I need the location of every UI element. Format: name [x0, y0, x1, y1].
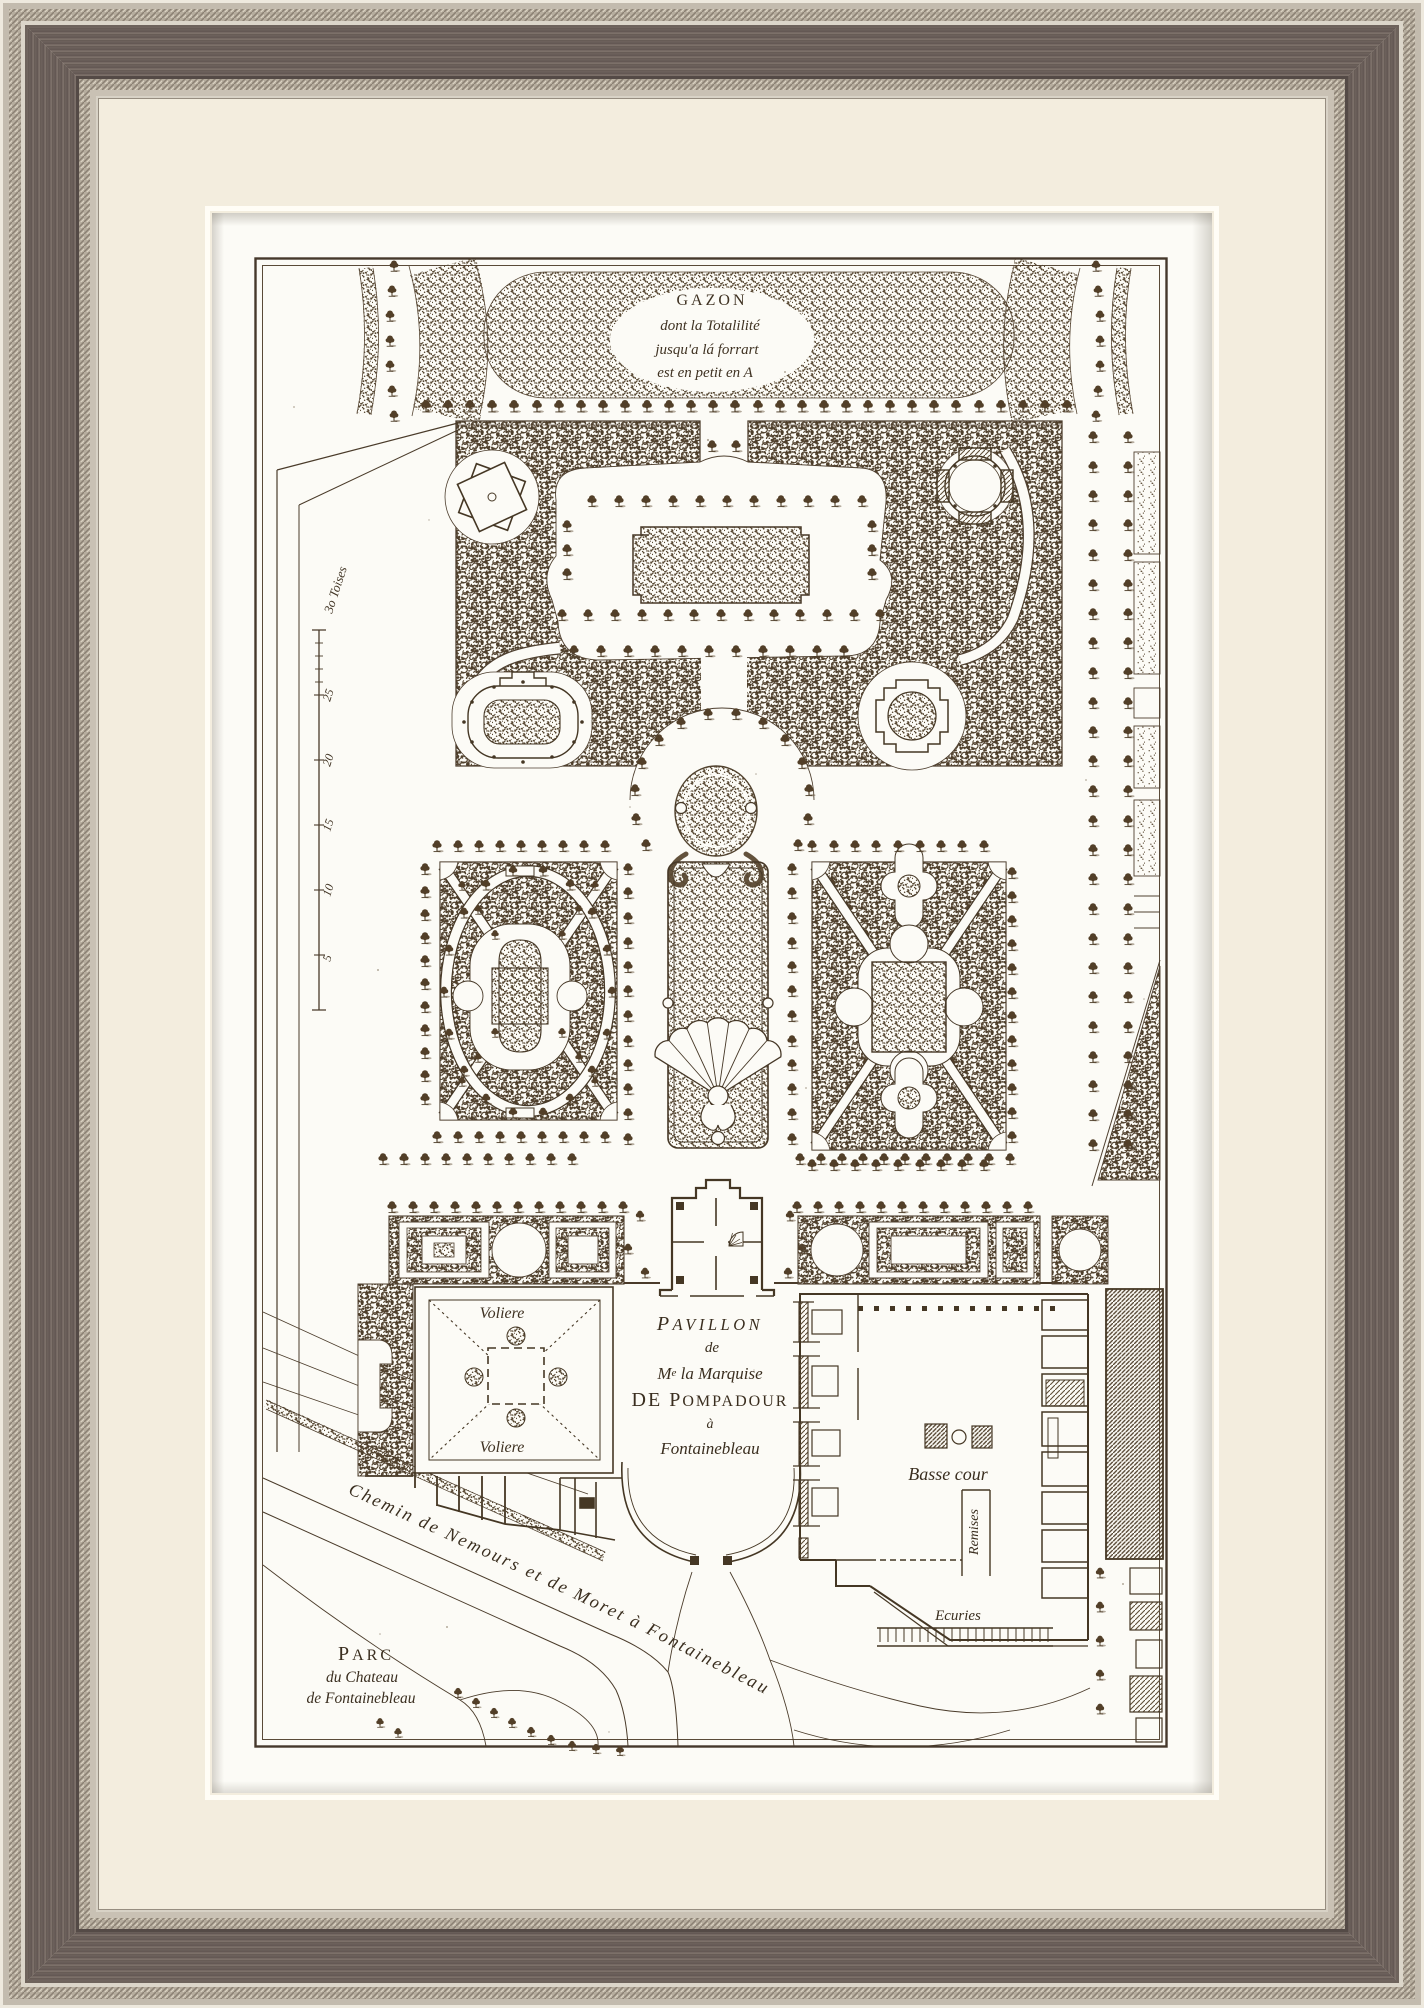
- svg-text:de: de: [705, 1340, 720, 1356]
- svg-text:Fontainebleau: Fontainebleau: [659, 1439, 759, 1458]
- svg-text:DE POMPADOUR: DE POMPADOUR: [632, 1389, 789, 1411]
- svg-text:dont la Totalilité: dont la Totalilité: [660, 318, 761, 334]
- svg-text:Basse cour: Basse cour: [908, 1464, 988, 1484]
- svg-text:Voliere: Voliere: [480, 1305, 525, 1322]
- svg-text:est en petit en A: est en petit en A: [657, 365, 753, 381]
- svg-text:Ecuries: Ecuries: [934, 1608, 981, 1624]
- svg-text:Remises: Remises: [967, 1509, 982, 1556]
- svg-text:de Fontainebleau: de Fontainebleau: [307, 1690, 416, 1707]
- svg-text:GAZON: GAZON: [677, 292, 748, 309]
- svg-text:à: à: [707, 1417, 714, 1432]
- svg-text:Voliere: Voliere: [480, 1439, 525, 1456]
- svg-text:jusqu'a lá forrart: jusqu'a lá forrart: [653, 342, 759, 358]
- svg-text:PARC: PARC: [338, 1643, 394, 1665]
- svg-text:du Chateau: du Chateau: [326, 1669, 398, 1686]
- svg-text:PAVILLON: PAVILLON: [656, 1313, 763, 1335]
